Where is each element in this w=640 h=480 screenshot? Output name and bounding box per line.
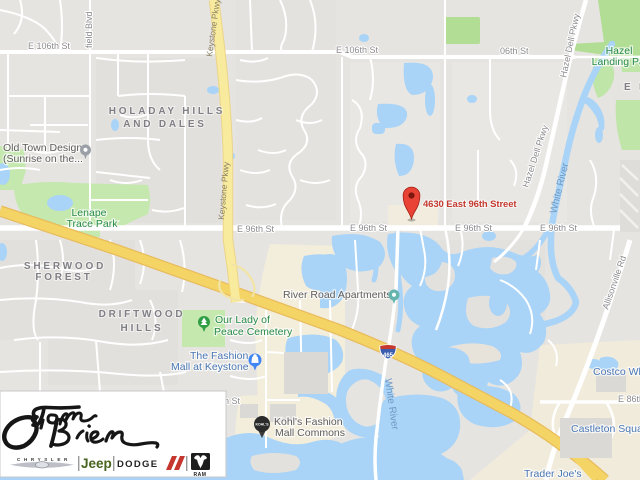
svg-text:4630 East 96th Street: 4630 East 96th Street (423, 199, 517, 210)
svg-text:Mall Commons: Mall Commons (275, 427, 345, 439)
svg-text:HOLADAY HILLS: HOLADAY HILLS (109, 106, 225, 117)
svg-text:RAM: RAM (194, 472, 207, 478)
svg-text:HILLS: HILLS (121, 323, 164, 334)
svg-text:Trace Park: Trace Park (67, 218, 119, 230)
svg-text:Landing Par: Landing Par (592, 56, 640, 68)
svg-text:E 96th St: E 96th St (540, 223, 578, 233)
svg-text:Jeep: Jeep (81, 456, 112, 471)
svg-text:Trader Joe's: Trader Joe's (524, 468, 582, 480)
svg-text:Our Lady of: Our Lady of (215, 314, 270, 326)
svg-text:Castleton Squa: Castleton Squa (571, 423, 640, 435)
svg-text:DODGE: DODGE (117, 459, 158, 470)
svg-text:E L L: E L L (624, 82, 640, 93)
svg-text:E 96th St: E 96th St (237, 224, 275, 234)
svg-text:SHERWOOD: SHERWOOD (24, 261, 106, 272)
svg-text:E 86th: E 86th (618, 394, 640, 404)
svg-text:AND DALES: AND DALES (123, 119, 207, 130)
svg-text:(Sunrise on the...: (Sunrise on the... (3, 153, 83, 165)
svg-text:FOREST: FOREST (35, 272, 92, 283)
svg-text:E 96th St: E 96th St (350, 223, 388, 233)
svg-text:06th St: 06th St (500, 46, 529, 56)
svg-text:River Road Apartments: River Road Apartments (283, 289, 392, 301)
svg-text:E 106th St: E 106th St (28, 41, 71, 51)
svg-text:field Blvd: field Blvd (84, 11, 94, 48)
svg-text:DRIFTWOOD: DRIFTWOOD (99, 309, 186, 320)
svg-text:E 96th St: E 96th St (455, 223, 493, 233)
svg-text:KOHL'S: KOHL'S (255, 423, 269, 427)
svg-text:465: 465 (383, 353, 394, 359)
svg-text:Mall at Keystone: Mall at Keystone (171, 361, 249, 373)
svg-text:Costco Wh: Costco Wh (593, 366, 640, 378)
svg-text:Peace Cemetery: Peace Cemetery (214, 326, 293, 338)
svg-text:E 106th St: E 106th St (336, 45, 379, 55)
svg-text:CHRYSLER: CHRYSLER (17, 457, 71, 462)
